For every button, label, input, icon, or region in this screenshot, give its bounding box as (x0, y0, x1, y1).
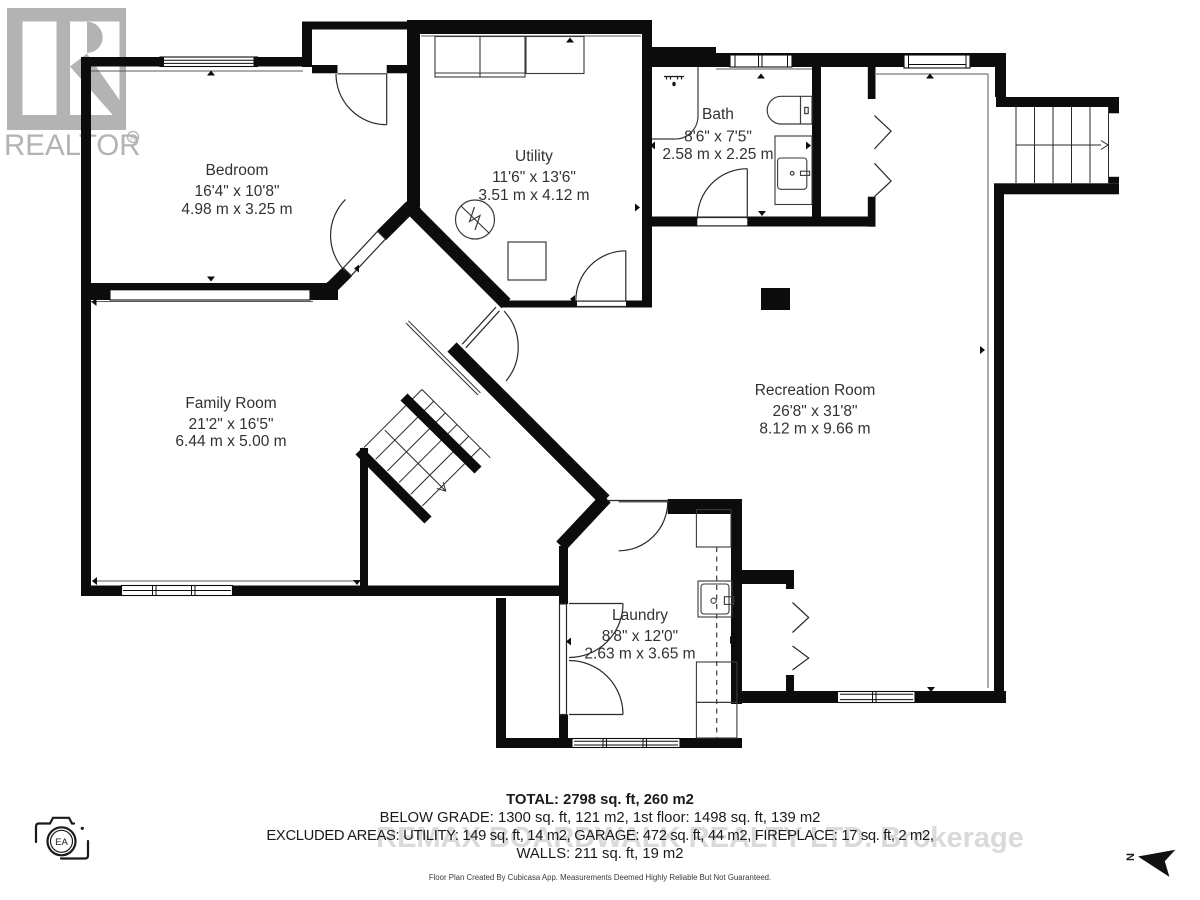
svg-text:Floor Plan Created By Cubicasa: Floor Plan Created By Cubicasa App. Meas… (429, 873, 771, 882)
svg-text:Recreation Room: Recreation Room (755, 382, 876, 399)
svg-text:4.98 m x 3.25 m: 4.98 m x 3.25 m (181, 201, 292, 218)
svg-text:R: R (130, 134, 136, 143)
svg-text:REALTOR: REALTOR (4, 129, 141, 162)
svg-text:EXCLUDED AREAS: UTILITY: 149 s: EXCLUDED AREAS: UTILITY: 149 sq. ft, 14 … (266, 828, 933, 844)
svg-text:16'4" x 10'8": 16'4" x 10'8" (194, 183, 279, 200)
svg-text:Laundry: Laundry (612, 607, 668, 624)
svg-text:8'6" x 7'5": 8'6" x 7'5" (684, 129, 752, 146)
svg-text:Bath: Bath (702, 106, 734, 123)
svg-text:TOTAL: 2798 sq. ft, 260 m2: TOTAL: 2798 sq. ft, 260 m2 (506, 792, 694, 808)
svg-text:26'8" x 31'8": 26'8" x 31'8" (772, 403, 857, 420)
svg-text:21'2" x 16'5": 21'2" x 16'5" (188, 416, 273, 433)
svg-text:8'8" x 12'0": 8'8" x 12'0" (602, 628, 678, 645)
svg-text:11'6" x 13'6": 11'6" x 13'6" (492, 169, 576, 186)
svg-text:2.63 m x 3.65 m: 2.63 m x 3.65 m (584, 646, 695, 663)
svg-text:EA: EA (55, 837, 68, 848)
svg-text:6.44 m x 5.00 m: 6.44 m x 5.00 m (175, 433, 286, 450)
svg-text:Utility: Utility (515, 148, 553, 165)
svg-text:N: N (1125, 853, 1137, 861)
svg-text:Family Room: Family Room (185, 395, 276, 412)
svg-text:3.51 m x 4.12 m: 3.51 m x 4.12 m (478, 187, 589, 204)
svg-text:8.12 m x 9.66 m: 8.12 m x 9.66 m (759, 421, 870, 438)
svg-text:WALLS: 211 sq. ft, 19 m2: WALLS: 211 sq. ft, 19 m2 (517, 846, 684, 862)
svg-text:Bedroom: Bedroom (206, 162, 269, 179)
svg-text:BELOW GRADE: 1300 sq. ft, 121: BELOW GRADE: 1300 sq. ft, 121 m2, 1st fl… (380, 810, 821, 826)
svg-text:2.58 m x 2.25 m: 2.58 m x 2.25 m (662, 146, 773, 163)
